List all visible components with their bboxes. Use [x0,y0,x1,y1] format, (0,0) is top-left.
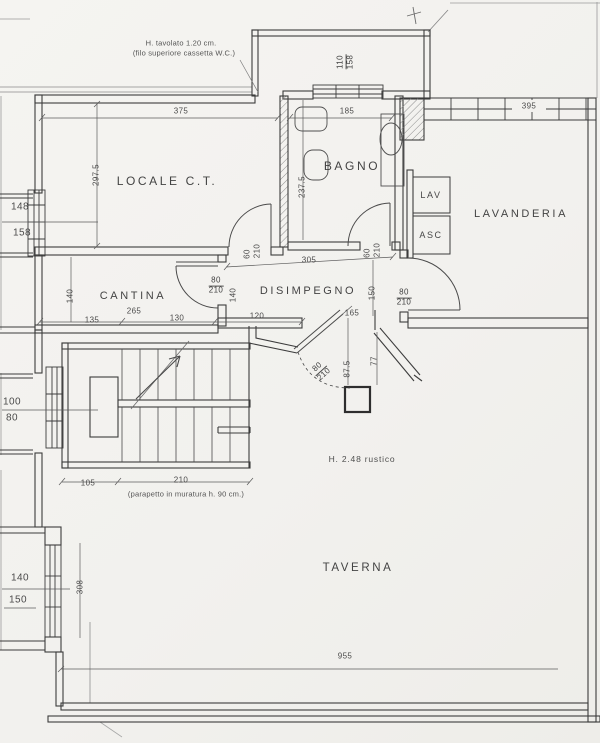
dim-band-395: 395 [522,102,537,111]
dim-seg-120: 120 [250,312,265,321]
bay-width: 110 [337,55,345,69]
dim-window2-width: 100 [3,397,21,408]
appliance-boxes [413,177,450,254]
dim-window1-height: 158 [13,228,31,239]
note-wc-line2: (filo superiore cassetta W.C.) [133,49,235,58]
bay-height: 158 [347,55,355,70]
column [345,387,370,412]
bay-window-dimension: 110 158 [337,55,356,70]
lavanderia-door-dimension: 80 210 [397,289,412,308]
dim-stair-210: 210 [174,476,189,485]
dim-window1-width: 148 [11,202,29,213]
bay-wall-top [252,30,430,36]
window-bagno-top [313,85,383,98]
dim-seg-165: 165 [345,309,360,318]
door-locale-ct [229,204,271,247]
door-lavanderia [408,258,460,310]
dim-bagno-door-width: 60 [363,248,372,258]
room-label-bagno: BAGNO [324,159,380,173]
dim-cantina-door-side: 140 [229,288,238,303]
basin-fixture [380,123,402,155]
dim-disimpegno-width: 305 [302,256,317,265]
exterior-face-lines [0,87,252,92]
plan-linework [0,0,600,743]
windows [28,85,596,637]
window-140 [45,545,61,637]
dim-cantina-width: 265 [127,307,142,316]
dim-bagno-depth: 237.5 [298,176,307,198]
walls [0,30,600,722]
door-bagno [348,203,390,246]
dim-locale-depth: 297.5 [92,164,101,186]
dim-disimpegno-depth: 150 [368,286,377,301]
wall-bottom-inner [61,703,588,710]
dim-bagno-width: 185 [340,107,355,116]
dim-wall-308: 308 [76,580,85,595]
room-label-taverna: TAVERNA [323,562,394,574]
dim-window3-height: 150 [9,595,27,606]
washer-label: LAV [420,190,441,200]
room-label-locale-ct: LOCALE C.T. [117,174,218,188]
window-100 [46,367,63,448]
room-label-disimpegno: DISIMPEGNO [260,285,356,297]
wall-bottom-outer [48,716,600,722]
dim-seg-135: 135 [85,316,100,325]
note-parapet: (parapetto in muratura h. 90 cm.) [128,490,244,499]
dim-column-gap-b: 77 [370,356,379,366]
dim-window3-width: 140 [11,573,29,584]
dim-column-gap-a: 87.5 [343,360,352,377]
dim-window2-height: 80 [6,413,18,424]
dim-taverna-width: 955 [338,652,353,661]
north-mark [407,7,448,32]
floor-plan: H. tavolato 1.20 cm. (filo superiore cas… [0,0,600,743]
note-wc-line1: H. tavolato 1.20 cm. [146,39,217,48]
wc-fixture [295,107,327,131]
dim-bagno-door-height: 210 [373,243,382,258]
room-label-cantina: CANTINA [100,290,166,302]
room-label-lavanderia: LAVANDERIA [474,208,568,220]
window-band-lavanderia [424,98,596,120]
dim-corridor-door-width: 60 [243,249,252,259]
bay-wall-right [424,30,430,98]
dryer-label: ASC [419,230,442,240]
note-height-rustico: H. 2.48 rustico [329,454,396,464]
wall-top-locale [35,95,255,103]
door-width: 80 [211,277,221,285]
dim-locale-width: 375 [174,107,189,116]
staircase [122,341,230,462]
window-148 [28,190,45,256]
door-height: 210 [209,287,224,295]
door-width: 80 [399,289,409,297]
dim-corridor-door-height: 210 [253,244,262,259]
wall-bagno-left [280,96,288,247]
dim-stair-105: 105 [81,479,96,488]
bathroom-fixtures [295,107,404,186]
dim-seg-130: 130 [170,314,185,323]
wall-right-outer [588,98,596,722]
cantina-door-dimension: 80 210 [209,277,224,296]
door-height: 210 [397,299,412,307]
dim-cantina-depth: 140 [66,289,75,304]
